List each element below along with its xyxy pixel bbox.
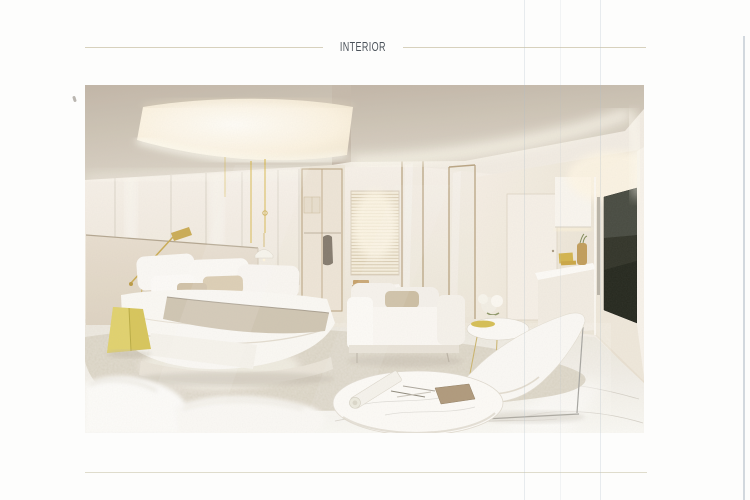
scan-speck bbox=[72, 96, 77, 103]
header-rule-left bbox=[85, 47, 323, 48]
scan-edge-line bbox=[743, 36, 745, 500]
footer-rule bbox=[85, 472, 647, 473]
scan-streak bbox=[600, 0, 601, 500]
page-header: INTERIOR bbox=[85, 40, 646, 54]
page-title: INTERIOR bbox=[340, 40, 386, 54]
scanned-page: INTERIOR bbox=[0, 0, 750, 500]
scan-streak bbox=[524, 0, 525, 500]
disclaimer-microtext-left: *········· ······· ········ bbox=[89, 423, 137, 428]
scan-streak bbox=[560, 0, 561, 500]
disclaimer-microtext-right: ····· ········ bbox=[261, 423, 286, 428]
